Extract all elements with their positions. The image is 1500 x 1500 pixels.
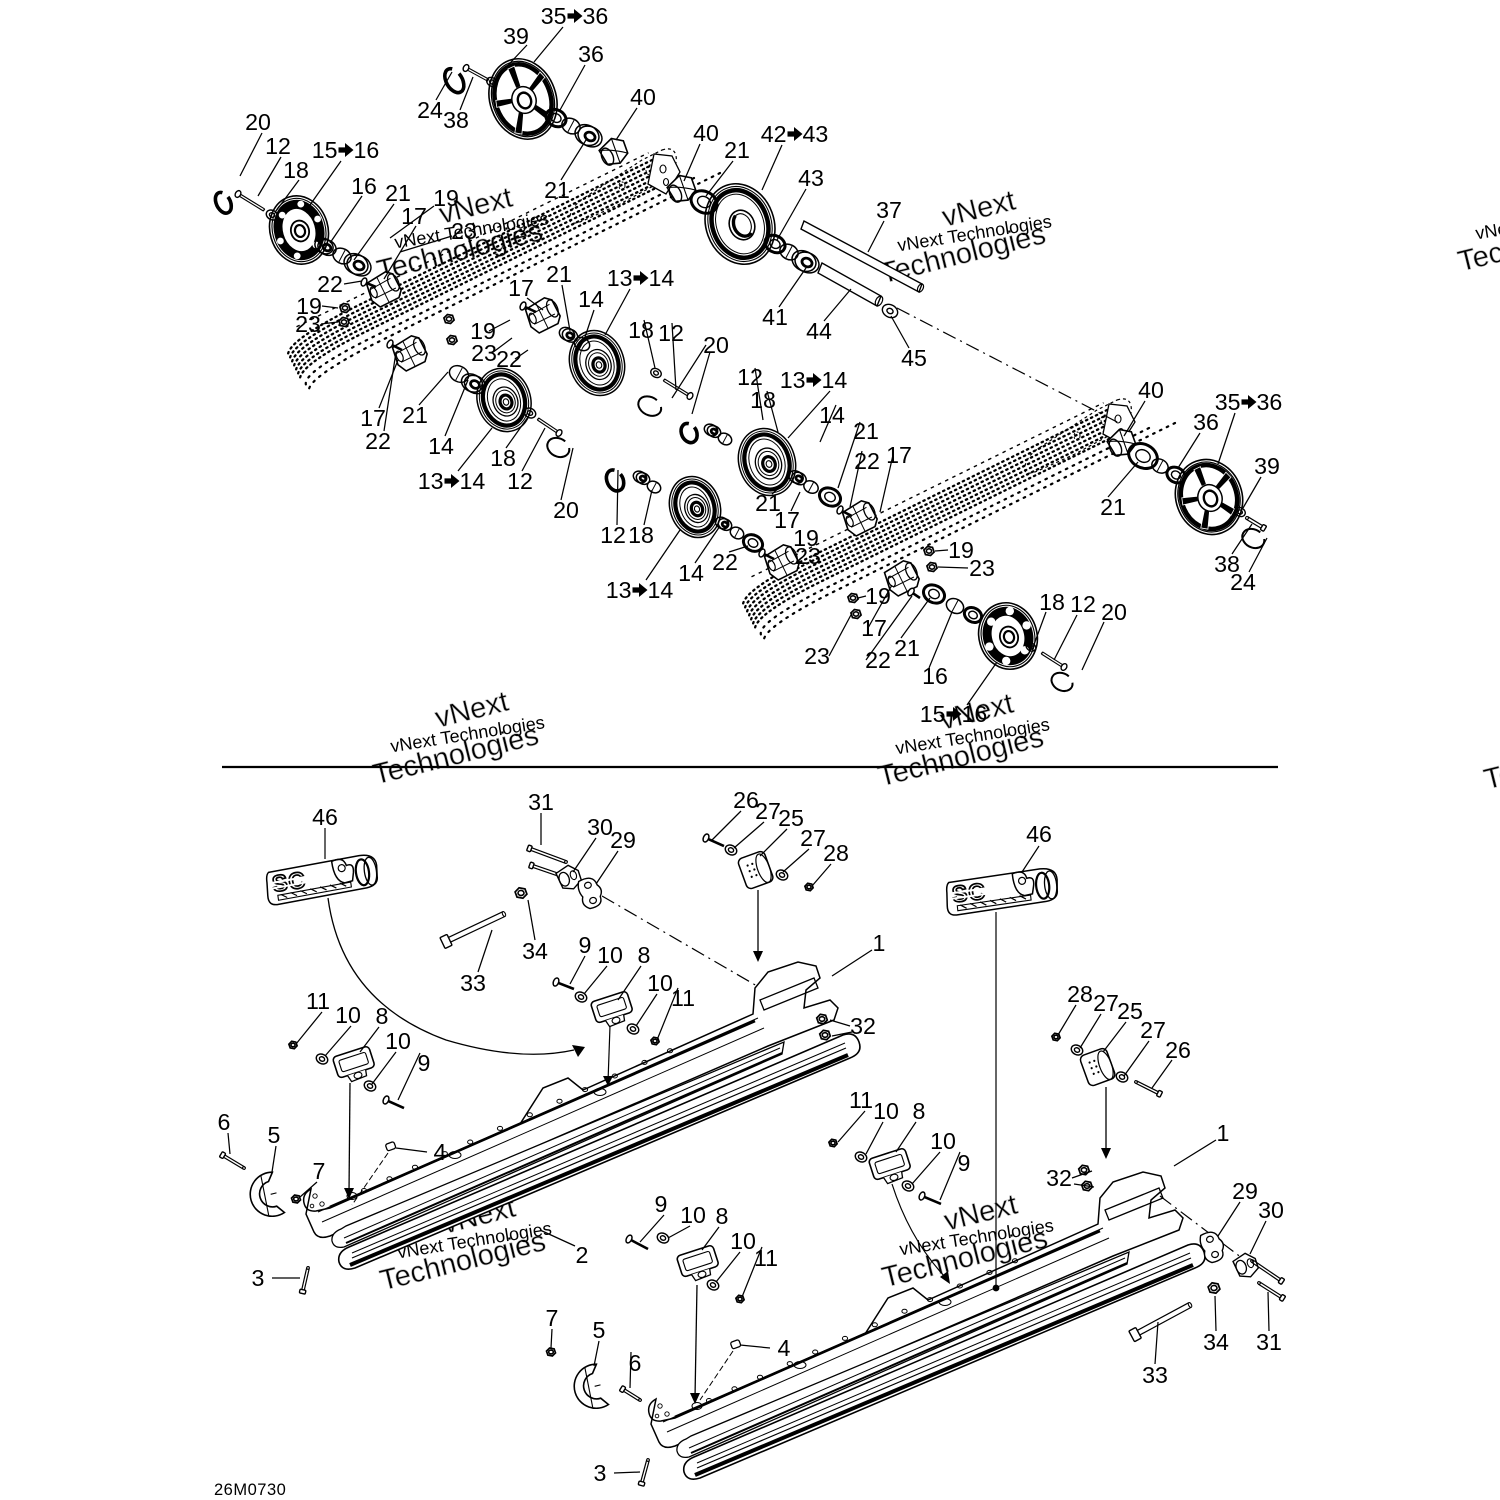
svg-text:21: 21 bbox=[894, 635, 920, 661]
svg-text:42: 42 bbox=[761, 121, 787, 147]
svg-text:45: 45 bbox=[901, 345, 927, 371]
svg-text:32: 32 bbox=[1046, 1165, 1072, 1191]
svg-text:10: 10 bbox=[873, 1098, 899, 1124]
svg-text:28: 28 bbox=[823, 840, 849, 866]
svg-text:9: 9 bbox=[655, 1191, 668, 1217]
svg-text:27: 27 bbox=[1093, 990, 1119, 1016]
svg-text:13: 13 bbox=[606, 577, 632, 603]
svg-text:9: 9 bbox=[579, 932, 592, 958]
svg-text:12: 12 bbox=[265, 133, 291, 159]
svg-text:12: 12 bbox=[507, 468, 533, 494]
svg-text:23: 23 bbox=[804, 643, 830, 669]
svg-text:41: 41 bbox=[762, 304, 788, 330]
svg-text:39: 39 bbox=[1254, 453, 1280, 479]
svg-text:20: 20 bbox=[553, 497, 579, 523]
svg-text:20: 20 bbox=[703, 332, 729, 358]
svg-text:14: 14 bbox=[578, 286, 604, 312]
svg-text:27: 27 bbox=[800, 825, 826, 851]
svg-text:13: 13 bbox=[780, 367, 806, 393]
svg-text:29: 29 bbox=[1232, 1178, 1258, 1204]
svg-text:11: 11 bbox=[849, 1087, 873, 1113]
svg-text:17: 17 bbox=[508, 275, 534, 301]
svg-text:19: 19 bbox=[865, 583, 891, 609]
svg-text:12: 12 bbox=[658, 320, 684, 346]
svg-text:20: 20 bbox=[1101, 599, 1127, 625]
svg-text:27: 27 bbox=[755, 798, 781, 824]
svg-text:7: 7 bbox=[546, 1305, 559, 1331]
svg-text:35: 35 bbox=[1215, 389, 1241, 415]
svg-text:16: 16 bbox=[922, 663, 948, 689]
svg-text:23: 23 bbox=[969, 555, 995, 581]
svg-text:34: 34 bbox=[522, 938, 548, 964]
svg-text:26M0730: 26M0730 bbox=[214, 1481, 286, 1499]
svg-text:11: 11 bbox=[306, 988, 330, 1014]
svg-text:32: 32 bbox=[850, 1013, 876, 1039]
svg-text:22: 22 bbox=[865, 647, 891, 673]
svg-text:36: 36 bbox=[578, 41, 604, 67]
svg-text:38: 38 bbox=[443, 107, 469, 133]
svg-text:23: 23 bbox=[795, 543, 821, 569]
svg-text:31: 31 bbox=[528, 789, 554, 815]
svg-text:33: 33 bbox=[1142, 1362, 1168, 1388]
svg-text:8: 8 bbox=[716, 1203, 729, 1229]
svg-text:14: 14 bbox=[822, 367, 848, 393]
svg-text:43: 43 bbox=[798, 165, 824, 191]
svg-text:39: 39 bbox=[503, 23, 529, 49]
svg-text:16: 16 bbox=[354, 137, 380, 163]
svg-text:8: 8 bbox=[638, 942, 651, 968]
svg-text:46: 46 bbox=[312, 804, 338, 830]
svg-text:8: 8 bbox=[376, 1003, 389, 1029]
svg-text:21: 21 bbox=[1100, 494, 1126, 520]
svg-text:3: 3 bbox=[252, 1265, 265, 1291]
svg-text:13: 13 bbox=[607, 265, 633, 291]
svg-text:37: 37 bbox=[876, 197, 902, 223]
svg-text:15: 15 bbox=[312, 137, 338, 163]
svg-text:8: 8 bbox=[913, 1098, 926, 1124]
svg-text:14: 14 bbox=[678, 560, 704, 586]
svg-text:10: 10 bbox=[335, 1002, 361, 1028]
svg-text:46: 46 bbox=[1026, 821, 1052, 847]
svg-text:14: 14 bbox=[428, 433, 454, 459]
svg-text:25: 25 bbox=[1117, 998, 1143, 1024]
svg-text:18: 18 bbox=[1039, 589, 1065, 615]
svg-text:40: 40 bbox=[630, 84, 656, 110]
svg-text:40: 40 bbox=[1138, 377, 1164, 403]
svg-text:27: 27 bbox=[1140, 1017, 1166, 1043]
svg-text:44: 44 bbox=[806, 318, 832, 344]
svg-text:12: 12 bbox=[1070, 591, 1096, 617]
svg-text:33: 33 bbox=[460, 970, 486, 996]
svg-text:31: 31 bbox=[1256, 1329, 1282, 1355]
svg-text:6: 6 bbox=[218, 1109, 231, 1135]
svg-text:18: 18 bbox=[628, 317, 654, 343]
svg-text:10: 10 bbox=[385, 1028, 411, 1054]
svg-text:30: 30 bbox=[1258, 1197, 1284, 1223]
svg-text:21: 21 bbox=[546, 261, 572, 287]
svg-text:28: 28 bbox=[1067, 981, 1093, 1007]
svg-text:3: 3 bbox=[594, 1460, 607, 1486]
svg-text:5: 5 bbox=[268, 1122, 281, 1148]
svg-text:19: 19 bbox=[433, 185, 459, 211]
svg-text:1: 1 bbox=[873, 930, 886, 956]
svg-text:16: 16 bbox=[962, 701, 988, 727]
svg-text:24: 24 bbox=[1230, 569, 1256, 595]
svg-text:10: 10 bbox=[930, 1128, 956, 1154]
svg-text:36: 36 bbox=[583, 3, 609, 29]
svg-text:36: 36 bbox=[1257, 389, 1283, 415]
svg-text:23: 23 bbox=[451, 218, 477, 244]
svg-text:5: 5 bbox=[593, 1317, 606, 1343]
svg-text:35: 35 bbox=[541, 3, 567, 29]
svg-text:10: 10 bbox=[597, 942, 623, 968]
svg-text:17: 17 bbox=[401, 203, 427, 229]
svg-text:17: 17 bbox=[886, 442, 912, 468]
svg-text:40: 40 bbox=[693, 120, 719, 146]
svg-text:7: 7 bbox=[313, 1158, 326, 1184]
svg-text:34: 34 bbox=[1203, 1329, 1229, 1355]
svg-text:24: 24 bbox=[417, 97, 443, 123]
svg-text:1: 1 bbox=[1217, 1120, 1230, 1146]
svg-text:22: 22 bbox=[496, 346, 522, 372]
svg-text:10: 10 bbox=[680, 1202, 706, 1228]
svg-text:22: 22 bbox=[712, 549, 738, 575]
svg-text:30: 30 bbox=[587, 814, 613, 840]
svg-text:12: 12 bbox=[600, 522, 626, 548]
svg-text:43: 43 bbox=[803, 121, 829, 147]
svg-text:2: 2 bbox=[576, 1242, 589, 1268]
svg-text:14: 14 bbox=[649, 265, 675, 291]
svg-text:18: 18 bbox=[628, 522, 654, 548]
svg-text:21: 21 bbox=[402, 402, 428, 428]
svg-text:26: 26 bbox=[1165, 1037, 1191, 1063]
svg-text:18: 18 bbox=[283, 157, 309, 183]
svg-text:10: 10 bbox=[647, 970, 673, 996]
svg-text:21: 21 bbox=[544, 177, 570, 203]
svg-text:21: 21 bbox=[724, 137, 750, 163]
svg-text:13: 13 bbox=[418, 468, 444, 494]
svg-text:29: 29 bbox=[610, 827, 636, 853]
svg-text:20: 20 bbox=[245, 109, 271, 135]
svg-text:14: 14 bbox=[460, 468, 486, 494]
svg-text:10: 10 bbox=[730, 1228, 756, 1254]
svg-text:23: 23 bbox=[295, 311, 321, 337]
svg-text:22: 22 bbox=[365, 428, 391, 454]
svg-text:16: 16 bbox=[351, 173, 377, 199]
svg-text:15: 15 bbox=[920, 701, 946, 727]
svg-text:4: 4 bbox=[778, 1335, 791, 1361]
svg-text:14: 14 bbox=[648, 577, 674, 603]
svg-text:4: 4 bbox=[434, 1139, 447, 1165]
